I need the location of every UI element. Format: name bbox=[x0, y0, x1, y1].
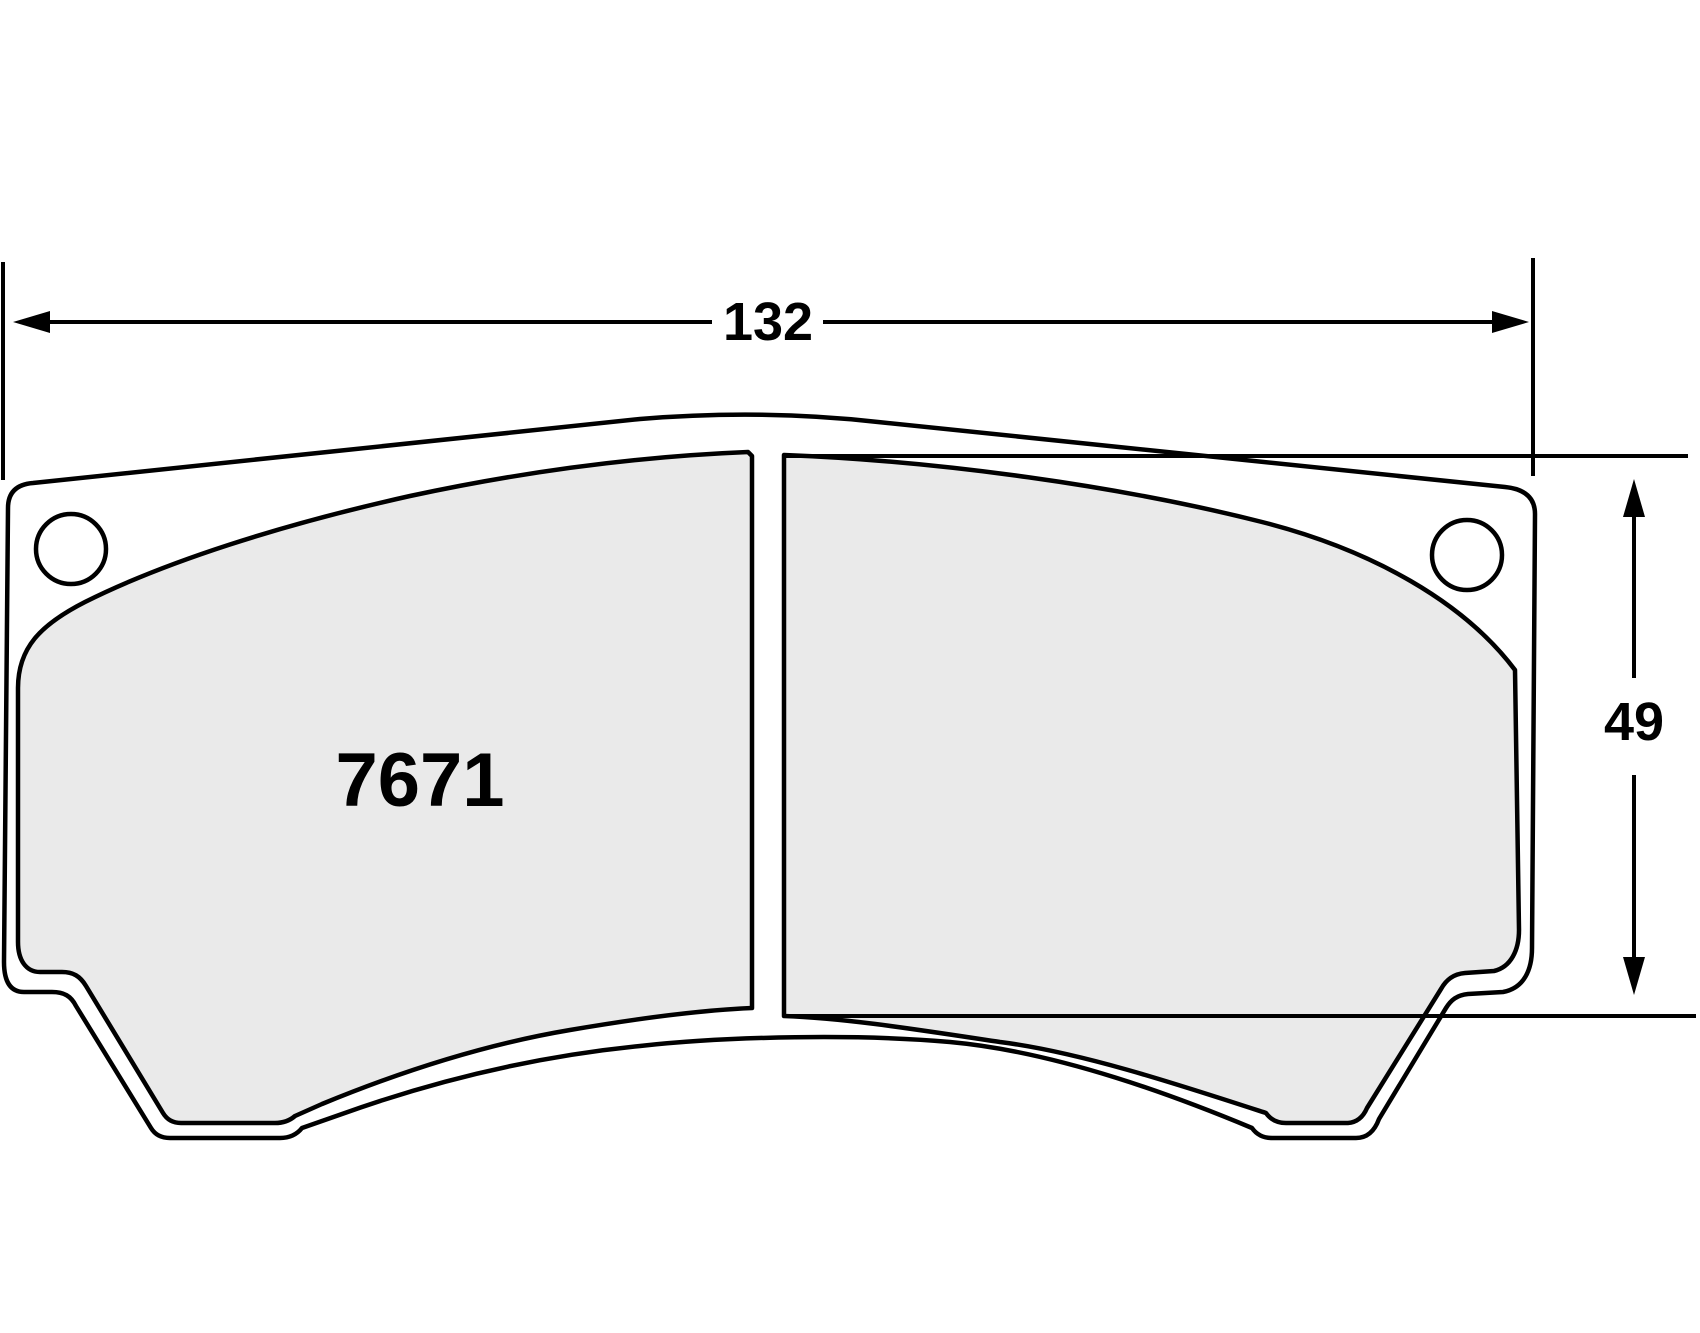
width-dimension-label: 132 bbox=[723, 292, 813, 352]
brake-pad: 7671 bbox=[4, 415, 1535, 1138]
mounting-hole-right bbox=[1432, 520, 1502, 590]
part-number-label: 7671 bbox=[335, 738, 504, 823]
technical-drawing: 7671 132 49 bbox=[0, 0, 1700, 1333]
drawing-canvas: 7671 132 49 bbox=[0, 0, 1700, 1333]
mounting-hole-left bbox=[36, 514, 106, 584]
height-dimension-label: 49 bbox=[1604, 692, 1664, 752]
